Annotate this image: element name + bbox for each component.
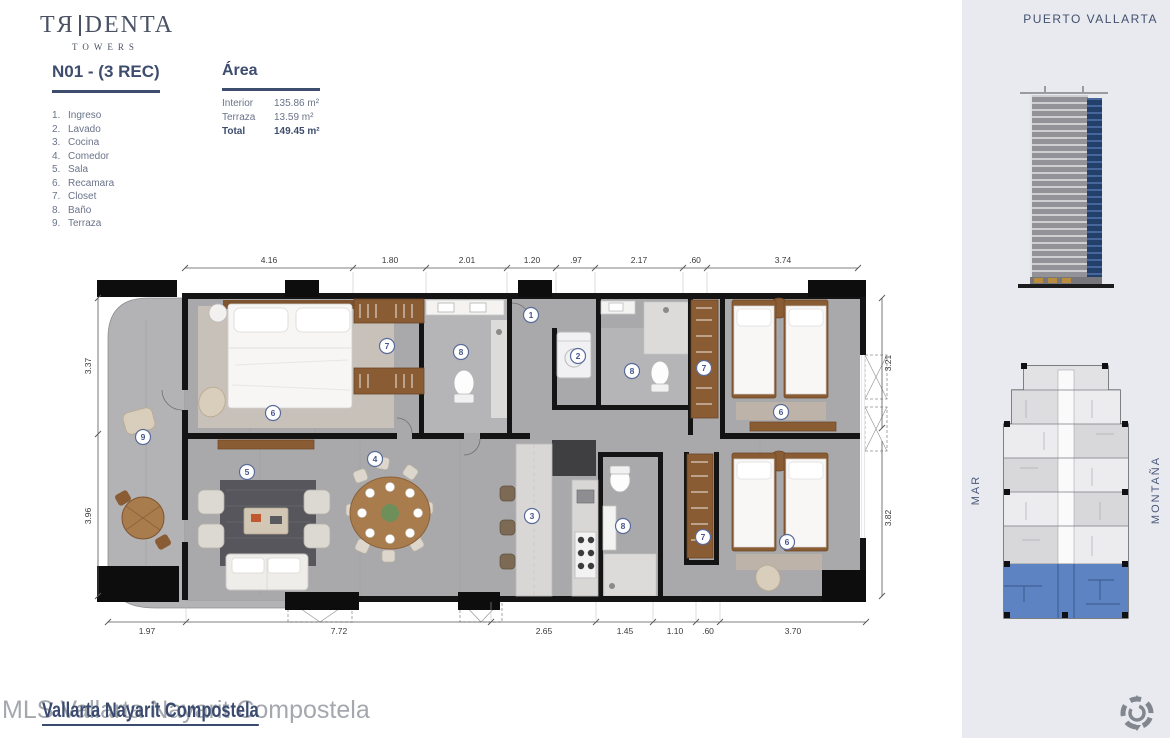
area-table: Interior135.86 m² Terraza13.59 m² Total1… — [222, 97, 320, 139]
tower-storefront — [1062, 278, 1071, 283]
area-info: Área Interior135.86 m² Terraza13.59 m² T… — [222, 62, 320, 139]
tower-elevation — [1018, 86, 1114, 290]
svg-text:2: 2 — [576, 351, 581, 361]
tower-roofline — [1020, 92, 1108, 94]
room-marker-bano-sur: 8 — [616, 519, 631, 534]
svg-text:3: 3 — [530, 511, 535, 521]
dim-label: 2.17 — [631, 255, 648, 265]
sea-orientation-label: MAR — [970, 475, 982, 505]
tridenta-logo: TЯ DENTA TOWERS — [40, 12, 174, 52]
legend-num: 9. — [52, 217, 68, 231]
legend-item: 4.Comedor — [52, 150, 160, 164]
legend-label: Sala — [68, 163, 88, 177]
legend-num: 3. — [52, 136, 68, 150]
legend-label: Baño — [68, 204, 91, 218]
legend-num: 4. — [52, 150, 68, 164]
room-marker-bano-principal: 8 — [454, 345, 469, 360]
legend-label: Ingreso — [68, 109, 101, 123]
location-panel: PUERTO VALLARTA MAR MONTAÑA — [962, 0, 1170, 738]
legend-num: 7. — [52, 190, 68, 204]
dim-label: 3.74 — [775, 255, 792, 265]
north-closet-furniture — [691, 300, 718, 418]
area-value: 13.59 m² — [274, 111, 313, 125]
dim-label: 1.10 — [667, 626, 684, 636]
svg-text:6: 6 — [785, 537, 790, 547]
dim-label: 4.16 — [261, 255, 278, 265]
room-marker-lavado: 2 — [571, 349, 586, 364]
svg-text:6: 6 — [271, 408, 276, 418]
svg-text:7: 7 — [385, 341, 390, 351]
room-marker-comedor: 4 — [368, 452, 383, 467]
room-marker-terraza: 9 — [136, 430, 151, 445]
legend-item: 5.Sala — [52, 163, 160, 177]
dim-label: 1.97 — [139, 626, 156, 636]
legend-label: Terraza — [68, 217, 101, 231]
dim-label: .97 — [570, 255, 582, 265]
legend-num: 5. — [52, 163, 68, 177]
room-marker-cocina: 3 — [525, 509, 540, 524]
legend-num: 8. — [52, 204, 68, 218]
area-row-total: Total149.45 m² — [222, 125, 320, 139]
dim-label: 1.20 — [524, 255, 541, 265]
dimension-labels-top: 4.16 1.80 2.01 1.20 .97 2.17 .60 3.74 — [261, 255, 792, 265]
room-marker-ingreso: 1 — [524, 308, 539, 323]
mountain-orientation-label: MONTAÑA — [1150, 456, 1162, 524]
tower-mast — [1044, 86, 1046, 93]
dim-label: 7.72 — [331, 626, 348, 636]
logo-right-text: DENTA — [85, 12, 174, 39]
unit-info: N01 - (3 REC) 1.Ingreso 2.Lavado 3.Cocin… — [52, 62, 160, 231]
legend-num: 2. — [52, 123, 68, 137]
city-label: PUERTO VALLARTA — [1023, 12, 1158, 26]
legend-num: 1. — [52, 109, 68, 123]
tower-mast — [1082, 86, 1084, 93]
legend-label: Closet — [68, 190, 96, 204]
dim-label: 3.70 — [785, 626, 802, 636]
dim-label: 2.65 — [536, 626, 553, 636]
title-rule — [52, 90, 160, 93]
room-legend: 1.Ingreso 2.Lavado 3.Cocina 4.Comedor 5.… — [52, 109, 160, 231]
logo-left-text: TЯ — [40, 12, 75, 39]
svg-text:9: 9 — [141, 432, 146, 442]
area-row-terraza: Terraza13.59 m² — [222, 111, 320, 125]
keyplan — [996, 360, 1136, 626]
legend-item: 1.Ingreso — [52, 109, 160, 123]
tower-glass-column — [1087, 98, 1102, 278]
room-marker-recamara-sur: 6 — [780, 535, 795, 550]
svg-text:7: 7 — [701, 532, 706, 542]
area-row-interior: Interior135.86 m² — [222, 97, 320, 111]
dim-label: 3.82 — [883, 509, 893, 526]
tower-body — [1030, 95, 1088, 278]
tridenta-logo-wordmark: TЯ DENTA — [40, 12, 174, 39]
svg-text:1: 1 — [529, 310, 534, 320]
room-marker-closet-norte: 7 — [697, 361, 712, 376]
area-title: Área — [222, 62, 320, 80]
legend-item: 7.Closet — [52, 190, 160, 204]
logo-subtitle: TOWERS — [72, 42, 174, 52]
room-marker-sala: 5 — [240, 465, 255, 480]
svg-text:6: 6 — [779, 407, 784, 417]
legend-item: 6.Recamara — [52, 177, 160, 191]
tower-groundline — [1018, 284, 1114, 288]
room-marker-recamara-norte: 6 — [774, 405, 789, 420]
area-label: Terraza — [222, 111, 274, 125]
window-rail — [862, 355, 865, 538]
dim-label: 1.80 — [382, 255, 399, 265]
dimension-labels-bottom: 1.97 7.72 2.65 1.45 1.10 .60 3.70 — [139, 626, 802, 636]
appliance-block — [552, 440, 596, 476]
legend-label: Cocina — [68, 136, 99, 150]
legend-item: 8.Baño — [52, 204, 160, 218]
svg-text:8: 8 — [459, 347, 464, 357]
legend-label: Recamara — [68, 177, 114, 191]
dim-label: 1.45 — [617, 626, 634, 636]
floor-plan-svg: 4.16 1.80 2.01 1.20 .97 2.17 .60 3.74 1.… — [60, 240, 925, 650]
room-marker-closet-principal: 7 — [380, 339, 395, 354]
dimension-labels-left: 3.37 3.96 — [83, 357, 93, 524]
svg-text:8: 8 — [630, 366, 635, 376]
svg-text:7: 7 — [702, 363, 707, 373]
tower-storefront — [1048, 278, 1057, 283]
legend-label: Comedor — [68, 150, 109, 164]
dim-label: 3.21 — [883, 354, 893, 371]
dim-label: 3.96 — [83, 507, 93, 524]
legend-num: 6. — [52, 177, 68, 191]
legend-item: 2.Lavado — [52, 123, 160, 137]
area-rule — [222, 88, 320, 91]
legend-label: Lavado — [68, 123, 101, 137]
keyplan-corridor — [1058, 370, 1074, 564]
svg-text:4: 4 — [373, 454, 378, 464]
floor-plan: 4.16 1.80 2.01 1.20 .97 2.17 .60 3.74 1.… — [60, 240, 925, 655]
room-marker-closet-sur: 7 — [696, 530, 711, 545]
area-value: 149.45 m² — [274, 125, 320, 139]
area-value: 135.86 m² — [274, 97, 319, 111]
floorplan-sheet: TЯ DENTA TOWERS N01 - (3 REC) 1.Ingreso … — [0, 0, 1170, 738]
dim-label: 3.37 — [83, 357, 93, 374]
room-marker-bano-central: 8 — [625, 364, 640, 379]
logo-divider — [79, 15, 81, 36]
tower-storefront — [1034, 278, 1043, 283]
svg-text:8: 8 — [621, 521, 626, 531]
watermark-link[interactable]: Vallarta Nayarit Compostela — [42, 699, 259, 726]
legend-item: 3.Cocina — [52, 136, 160, 150]
keyplan-highlighted-unit — [1004, 564, 1128, 618]
dim-label: .60 — [702, 626, 714, 636]
dim-label: 2.01 — [459, 255, 476, 265]
dim-label: .60 — [689, 255, 701, 265]
room-marker-recamara-principal: 6 — [266, 406, 281, 421]
area-label: Interior — [222, 97, 274, 111]
legend-item: 9.Terraza — [52, 217, 160, 231]
circular-emblem-icon — [1118, 694, 1156, 732]
svg-text:5: 5 — [245, 467, 250, 477]
area-label: Total — [222, 125, 274, 139]
unit-title: N01 - (3 REC) — [52, 62, 160, 82]
